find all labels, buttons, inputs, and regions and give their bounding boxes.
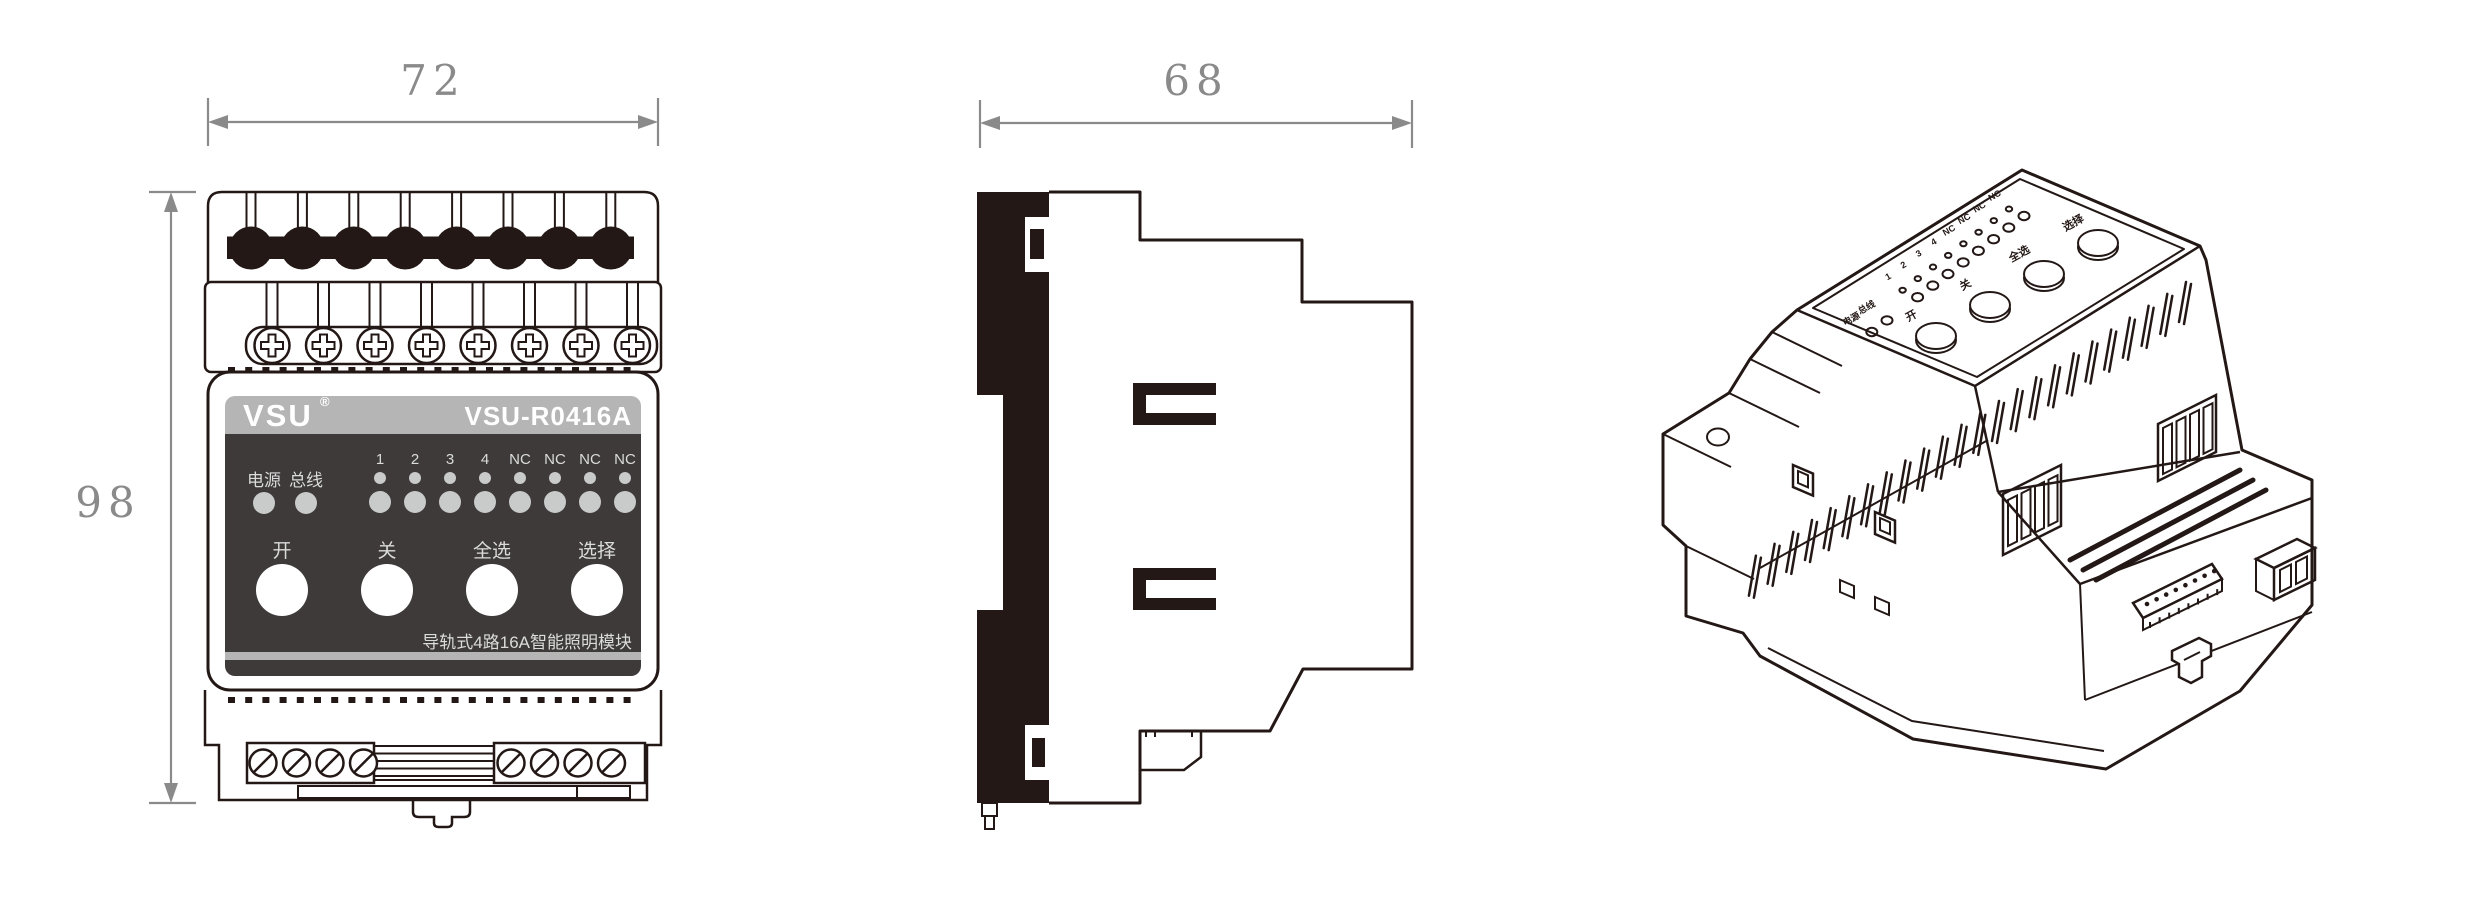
screw-terminal bbox=[461, 328, 496, 363]
terminal-opening-bottom bbox=[1133, 568, 1216, 610]
iso-body bbox=[1663, 170, 2312, 769]
front-width-dimension: 72 bbox=[208, 56, 658, 146]
terminal-busbar bbox=[227, 237, 634, 260]
arrowhead-left-icon bbox=[980, 116, 1000, 130]
front-height-label: 98 bbox=[75, 478, 140, 527]
channel-label: NC bbox=[544, 451, 566, 468]
screw-terminal bbox=[409, 328, 444, 363]
panel-footer-bar bbox=[225, 660, 641, 676]
panel-divider bbox=[225, 652, 641, 660]
power-led bbox=[253, 492, 275, 514]
din-clip bbox=[413, 800, 470, 827]
release-pin bbox=[985, 816, 994, 829]
product-caption: 导轨式4路16A智能照明模块 bbox=[422, 633, 632, 652]
channel-label: NC bbox=[579, 451, 601, 468]
technical-drawing: 72 98 bbox=[0, 0, 2481, 924]
arrowhead-right-icon bbox=[638, 115, 658, 129]
bottom-screw bbox=[317, 750, 344, 777]
side-width-label: 68 bbox=[1163, 56, 1228, 105]
bottom-screw bbox=[498, 750, 525, 777]
channel-label: 3 bbox=[446, 451, 454, 468]
arrowhead-up-icon bbox=[164, 192, 178, 212]
screw-terminal-row bbox=[205, 282, 661, 372]
select-all-button-label: 全选 bbox=[473, 540, 511, 562]
arrowhead-down-icon bbox=[164, 783, 178, 803]
side-body-outline bbox=[1049, 192, 1412, 803]
channel-label: NC bbox=[509, 451, 531, 468]
brand-logo: VSU bbox=[243, 398, 313, 433]
arrowhead-right-icon bbox=[1392, 116, 1412, 130]
channel-label: 4 bbox=[481, 451, 489, 468]
select-button bbox=[571, 564, 623, 616]
screw-terminal bbox=[358, 328, 393, 363]
select-all-button bbox=[466, 564, 518, 616]
terminal-opening-top bbox=[1133, 383, 1216, 425]
front-width-label: 72 bbox=[400, 56, 465, 105]
bus-led bbox=[295, 492, 317, 514]
bottom-screw bbox=[565, 750, 592, 777]
bottom-screw bbox=[350, 750, 377, 777]
on-button bbox=[256, 564, 308, 616]
on-button-label: 开 bbox=[272, 541, 291, 562]
channel-label: 2 bbox=[411, 451, 419, 468]
registered-mark: ® bbox=[320, 394, 330, 409]
bottom-screw bbox=[250, 750, 277, 777]
side-width-dimension: 68 bbox=[980, 56, 1412, 148]
bottom-terminal-block bbox=[205, 690, 661, 827]
channel-label: 1 bbox=[376, 451, 384, 468]
screw-terminal bbox=[564, 328, 599, 363]
front-view: 72 98 bbox=[75, 56, 661, 827]
side-front-plate bbox=[977, 192, 1049, 803]
screw-terminal bbox=[512, 328, 547, 363]
bus-led-label: 总线 bbox=[289, 471, 323, 490]
screw-terminal bbox=[306, 328, 341, 363]
screw-terminal bbox=[615, 328, 650, 363]
side-view: 68 bbox=[977, 56, 1412, 829]
channel-label: NC bbox=[614, 451, 636, 468]
power-led-label: 电源 bbox=[247, 471, 281, 490]
front-height-dimension: 98 bbox=[75, 192, 196, 803]
top-terminal-block bbox=[208, 192, 658, 282]
off-button-label: 关 bbox=[377, 540, 396, 562]
off-button bbox=[361, 564, 413, 616]
din-rail-plate bbox=[298, 786, 630, 798]
select-button-label: 选择 bbox=[578, 540, 616, 562]
screw-terminal bbox=[255, 328, 290, 363]
model-number: VSU-R0416A bbox=[464, 401, 632, 431]
iso-view: NC NC NC NC 4 3 2 1 总线 电源 bbox=[1663, 170, 2315, 769]
arrowhead-left-icon bbox=[208, 115, 228, 129]
bottom-screw bbox=[531, 750, 558, 777]
drawing-canvas: 72 98 bbox=[0, 0, 2481, 924]
bottom-screw bbox=[283, 750, 310, 777]
bottom-screw bbox=[598, 750, 625, 777]
front-face: VSU ® VSU-R0416A 电源 总线 1 2 3 4 NC NC NC … bbox=[208, 370, 658, 690]
